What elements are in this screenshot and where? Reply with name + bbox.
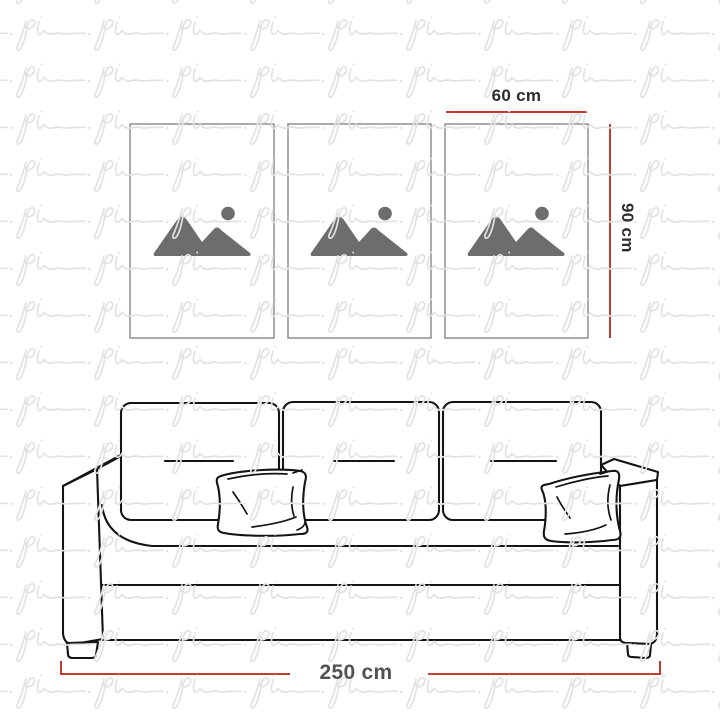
scene-graphic xyxy=(0,0,720,719)
watermark-overlay xyxy=(0,0,720,719)
panel-height-label: 90 cm xyxy=(617,203,637,253)
sofa-width-label: 250 cm xyxy=(256,661,456,685)
panel-width-label: 60 cm xyxy=(446,86,587,106)
product-dimension-diagram: 60 cm 90 cm 250 cm xyxy=(0,0,720,719)
